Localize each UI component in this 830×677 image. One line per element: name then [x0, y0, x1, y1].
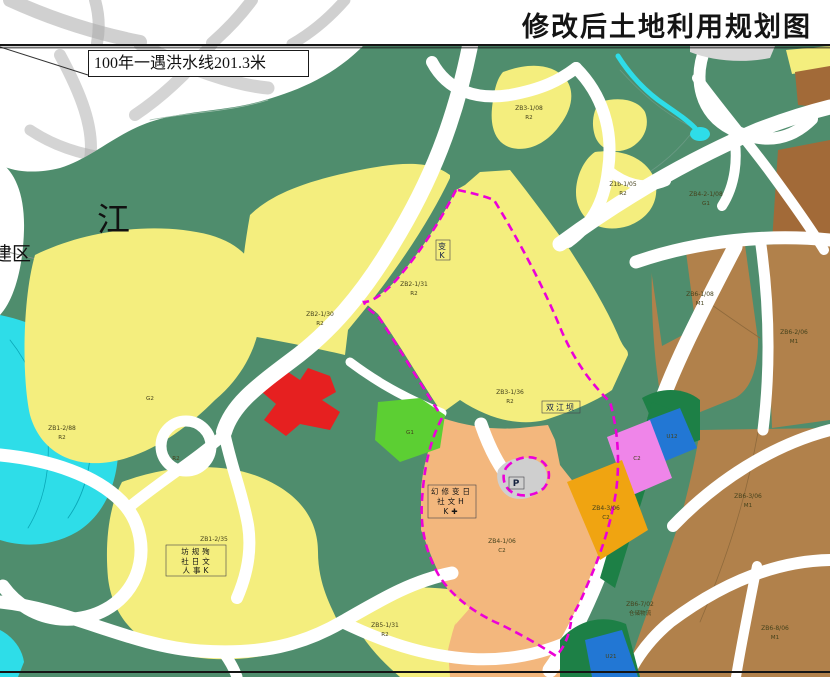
parcel-type: R2: [619, 191, 626, 197]
parcel-type: R2: [525, 115, 532, 121]
map-canvas: 坊规殉 社日文 人事K 幻修变日 社文H K✚ 变 K 双江坝 P ZB2-1/…: [0, 44, 830, 677]
map-frame-bottom: [0, 671, 830, 673]
parcel-type: U21: [605, 654, 617, 660]
watermark-top: [0, 0, 830, 44]
parcel-type: C2: [498, 548, 505, 554]
watermark-stroke: [95, 0, 99, 43]
zone-marker-text: 变: [438, 241, 448, 251]
parcel-code: ZB1-2/35: [200, 536, 228, 543]
parking-label: P: [513, 479, 520, 489]
parcel-type: M1: [696, 301, 705, 307]
watermark-stroke: [292, 0, 345, 44]
parcel-type: R2: [172, 456, 179, 462]
stream-pool: [690, 127, 710, 141]
parcel-code: ZB4-3/06: [592, 505, 620, 512]
parcel-code: ZB1-2/88: [48, 425, 76, 432]
parcel-type: G1: [406, 430, 414, 436]
parcel-code: ZB6-8/06: [761, 625, 789, 632]
facility-cluster-row: K✚: [443, 507, 460, 516]
parcel-type: R2: [381, 632, 388, 638]
parcel-type: M1: [790, 339, 799, 345]
parcel-type: R2: [316, 321, 323, 327]
parcel-type: C2: [633, 456, 640, 462]
facility-cluster-row: 幻修变日: [431, 486, 473, 496]
parcel-code: ZB6-3/06: [734, 493, 762, 500]
parcel-type: 仓储物流: [629, 609, 652, 617]
facility-cluster-row: 社文H: [437, 496, 467, 506]
zone-name-text: 双江坝: [546, 403, 576, 412]
map-frame-top-thin: [0, 47, 830, 48]
watermark-stroke: [212, 0, 252, 43]
parcel-type: U12: [666, 434, 677, 440]
district-name-label: 建区: [0, 239, 31, 266]
facility-cluster-row: 社日文: [181, 556, 213, 566]
parcel-code: ZB6-1/08: [686, 291, 714, 298]
parcel-code: ZB3-1/36: [496, 389, 524, 396]
parcel-code: ZB2-1/30: [306, 311, 334, 318]
watermark-stroke: [10, 0, 140, 42]
parcel-type: M1: [744, 503, 753, 509]
planning-map-page: 修改后土地利用规划图: [0, 0, 830, 677]
parcel-type: G1: [702, 201, 710, 207]
parcel-code: ZB5-1/31: [371, 622, 399, 629]
parcel-type: R2: [410, 291, 417, 297]
parcel-type: C2: [602, 515, 609, 521]
flood-line-label: 100年一遇洪水线201.3米: [88, 50, 309, 77]
parcel-type: R2: [506, 399, 513, 405]
zone-marker-text: K: [439, 251, 446, 260]
parcel-type: G2: [146, 396, 154, 402]
facility-cluster-row: 人事K: [183, 565, 212, 575]
parcel-type: R2: [58, 435, 65, 441]
map-frame-top: [0, 44, 830, 46]
parcel-code: ZB3-1/08: [515, 105, 543, 112]
river-name-label: 江: [97, 193, 134, 241]
parcel-code: ZB4-1/06: [488, 538, 516, 545]
parcel-code: ZB6-2/06: [780, 329, 808, 336]
parcel-type: M1: [771, 635, 780, 641]
parcel-code: ZB2-1/31: [400, 281, 428, 288]
facility-cluster-row: 坊规殉: [181, 546, 213, 556]
parcel-code: ZB4-2-1/08: [689, 191, 723, 198]
parcel-code: Z1b-1/05: [609, 181, 637, 188]
parcel-code: ZB6-7/02: [626, 601, 654, 608]
